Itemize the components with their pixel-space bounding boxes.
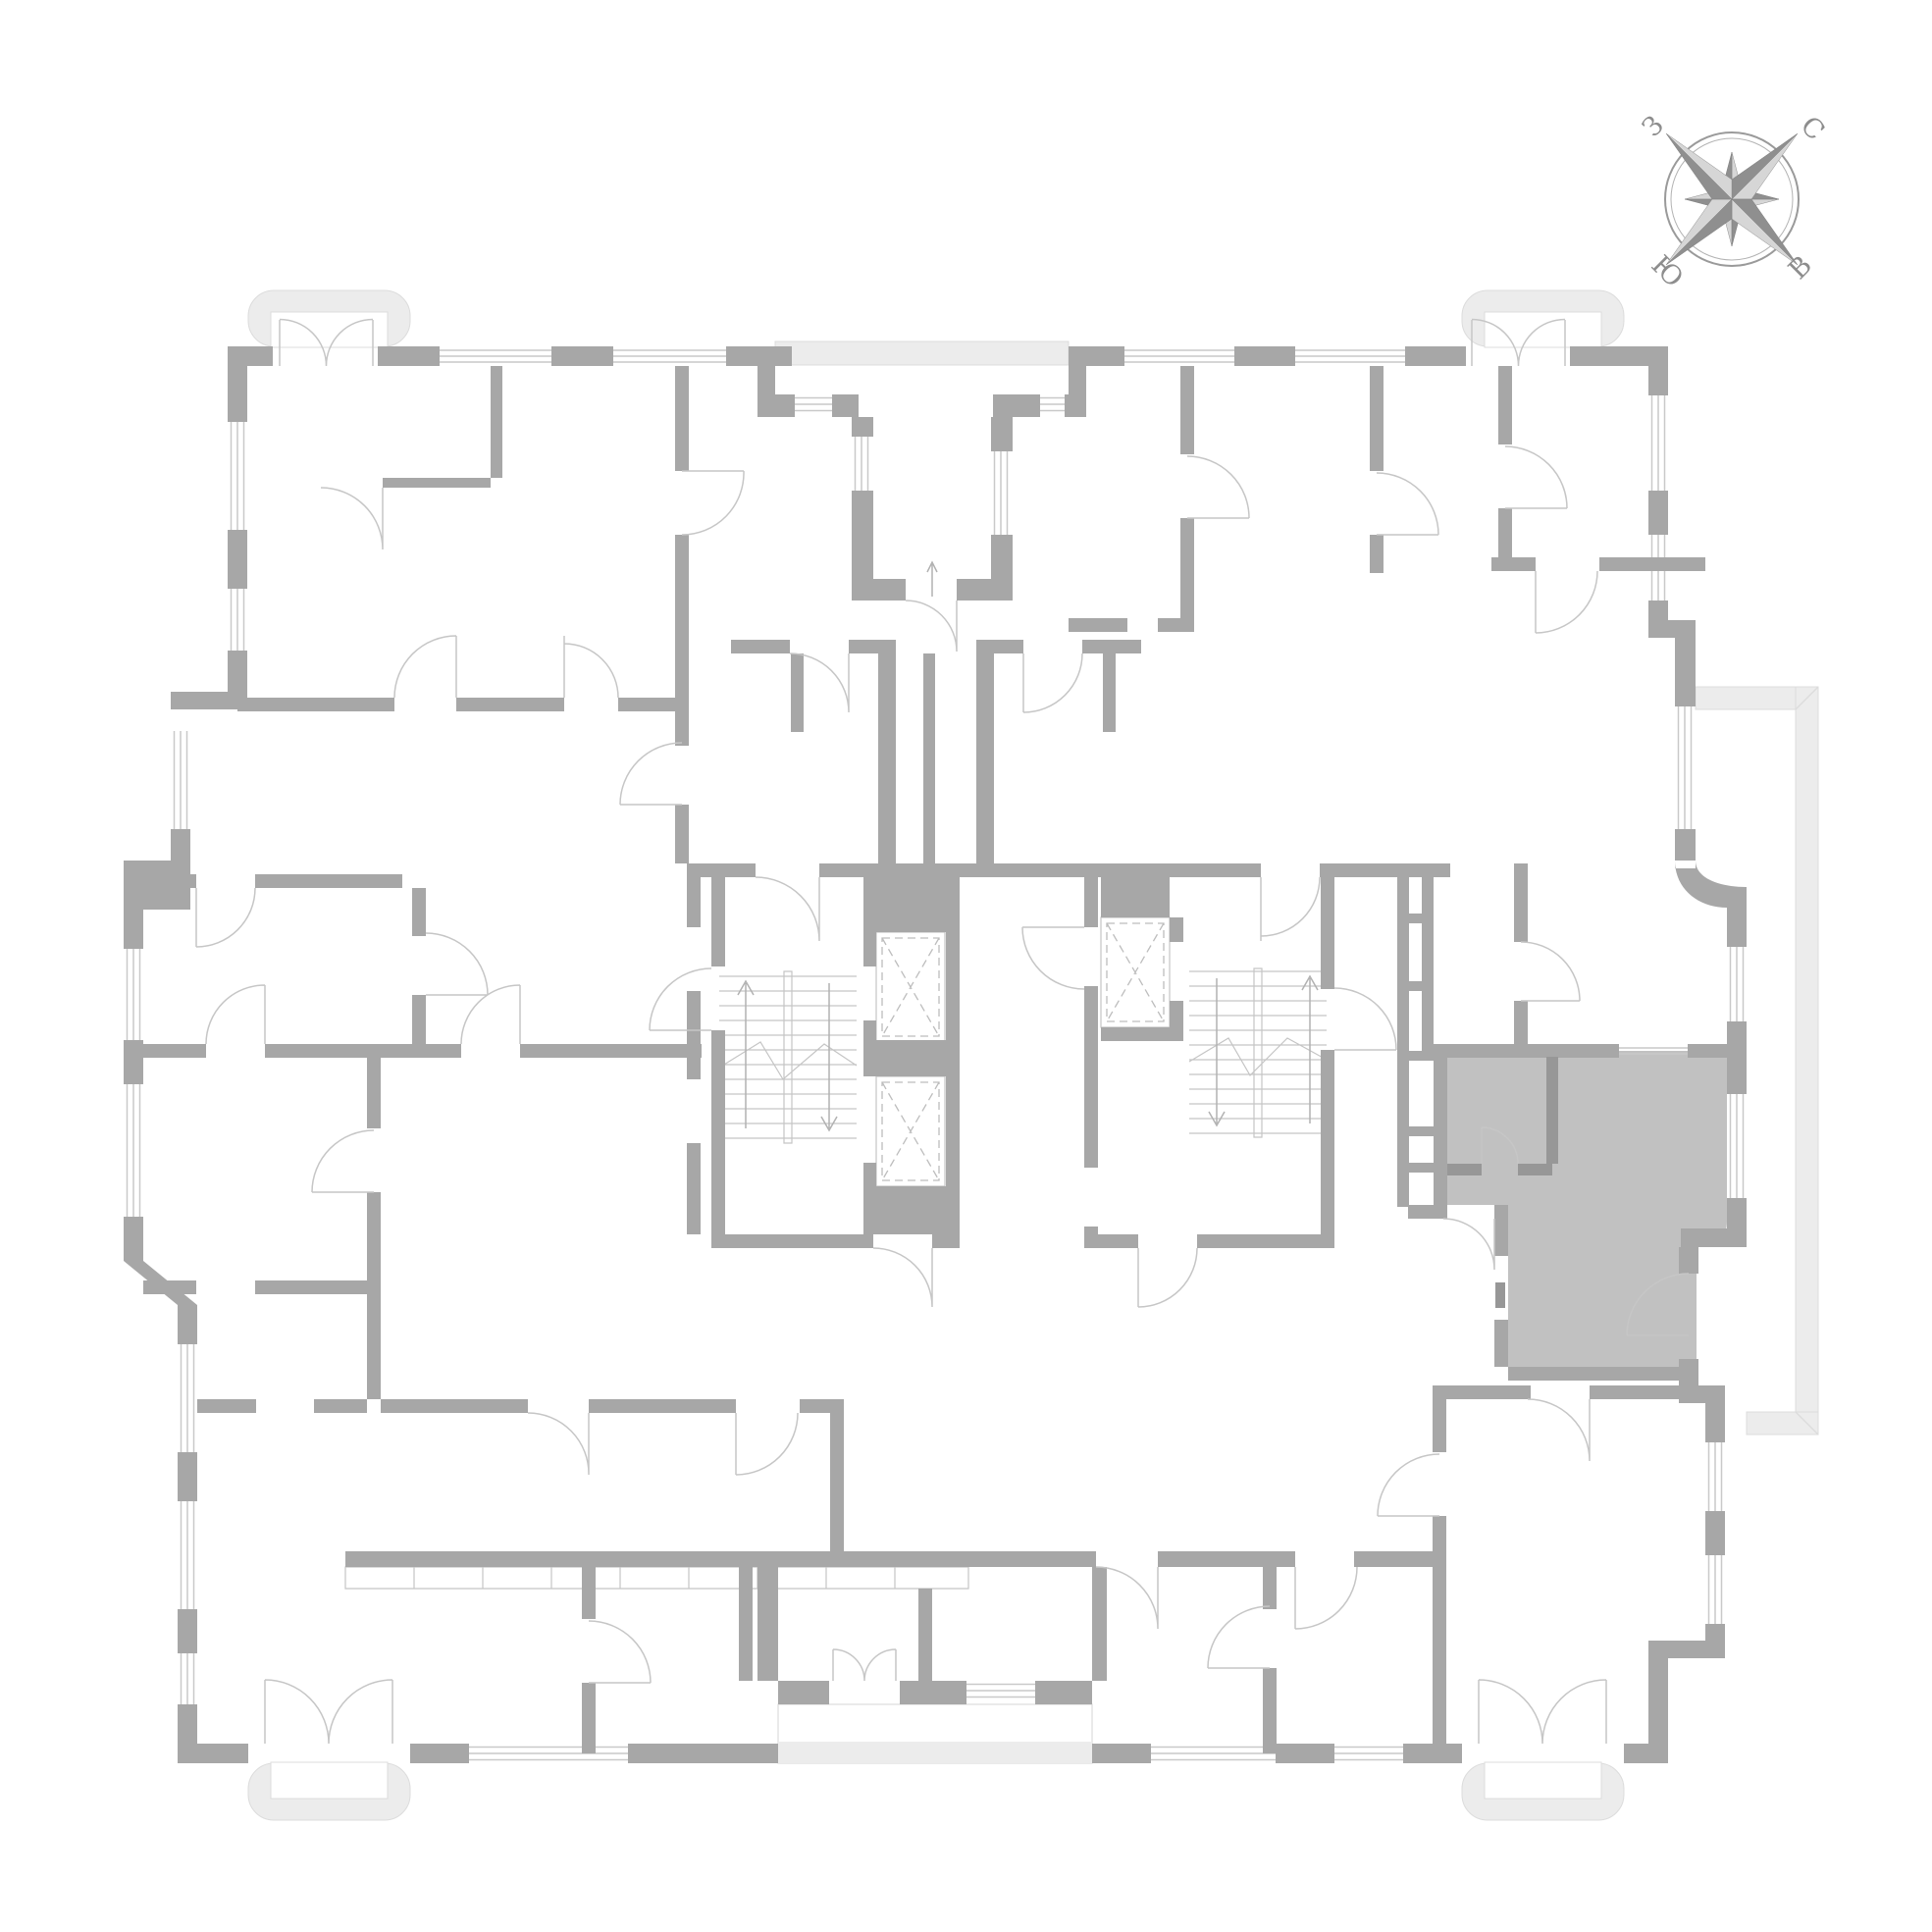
compass-star	[1666, 133, 1798, 265]
terrace-top-notch	[775, 341, 1069, 365]
compass-rose: С В Ю З	[1637, 110, 1830, 293]
compass-label-south: Ю	[1645, 250, 1690, 294]
compass-label-west: З	[1637, 110, 1670, 143]
balcony-top-left-floor	[271, 312, 388, 347]
floor-plan: С В Ю З	[0, 0, 1932, 1932]
wardrobe-niche-band	[345, 1567, 968, 1589]
stair-right-treads	[1189, 968, 1327, 1137]
balcony-bottom-left-floor	[271, 1762, 388, 1799]
floor-plan-page: С В Ю З	[0, 0, 1932, 1932]
highlighted-apartment[interactable]	[1447, 1051, 1727, 1367]
terrace-bottom-edge	[778, 1742, 1092, 1763]
balcony-bottom-right-floor	[1485, 1762, 1601, 1799]
compass-label-north: С	[1795, 111, 1831, 147]
